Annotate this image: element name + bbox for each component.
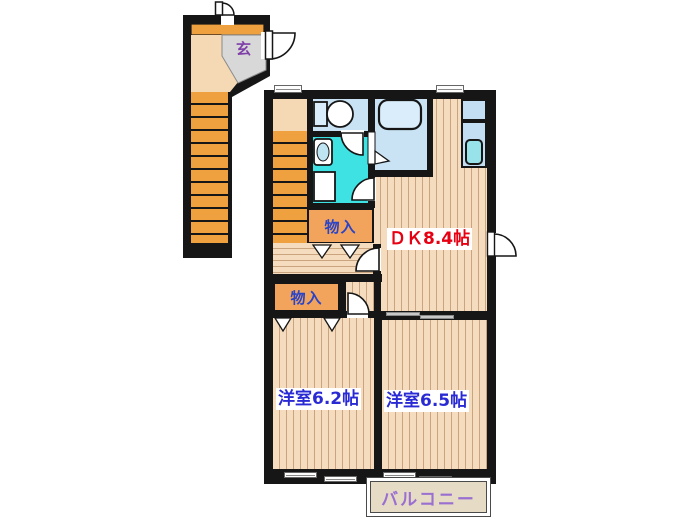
dk-exit-door-arc <box>494 234 516 256</box>
room-right-label: 洋室6.5帖 <box>384 390 469 412</box>
washroom-door-arc <box>352 178 374 200</box>
washing-machine <box>314 172 335 201</box>
room-left-door-arc <box>348 293 369 314</box>
toilet-door-arc <box>341 133 363 155</box>
entrance-label: 玄 <box>236 38 251 59</box>
entry-top-door-arc <box>222 3 234 15</box>
door-symbols-layer <box>0 0 700 525</box>
bath-door <box>368 132 375 164</box>
dk-exit-door-leaf <box>488 232 495 256</box>
entry-top-door-leaf <box>216 2 223 15</box>
toilet-bowl <box>327 101 353 127</box>
bath-door-arrow <box>375 151 389 164</box>
room-left-label: 洋室6.2帖 <box>276 388 361 410</box>
closet-lower-door-mark-2 <box>324 318 340 331</box>
toilet-tank <box>314 102 327 126</box>
entry-porch-step <box>191 24 264 35</box>
entry-door-leaf <box>266 31 273 59</box>
vanity-sink-bowl <box>317 143 329 161</box>
closet-upper-door-mark-1 <box>313 245 331 258</box>
dk-label: ＤＫ8.4帖 <box>387 228 472 250</box>
closet-upper-door-mark-2 <box>341 245 359 258</box>
floor-plan: 物入 物入 バルコニー <box>0 0 700 525</box>
dk-door-arc <box>356 248 379 271</box>
closet-lower-door-mark-1 <box>275 318 291 331</box>
exterior-stairs <box>191 92 228 243</box>
bathtub <box>379 100 421 129</box>
